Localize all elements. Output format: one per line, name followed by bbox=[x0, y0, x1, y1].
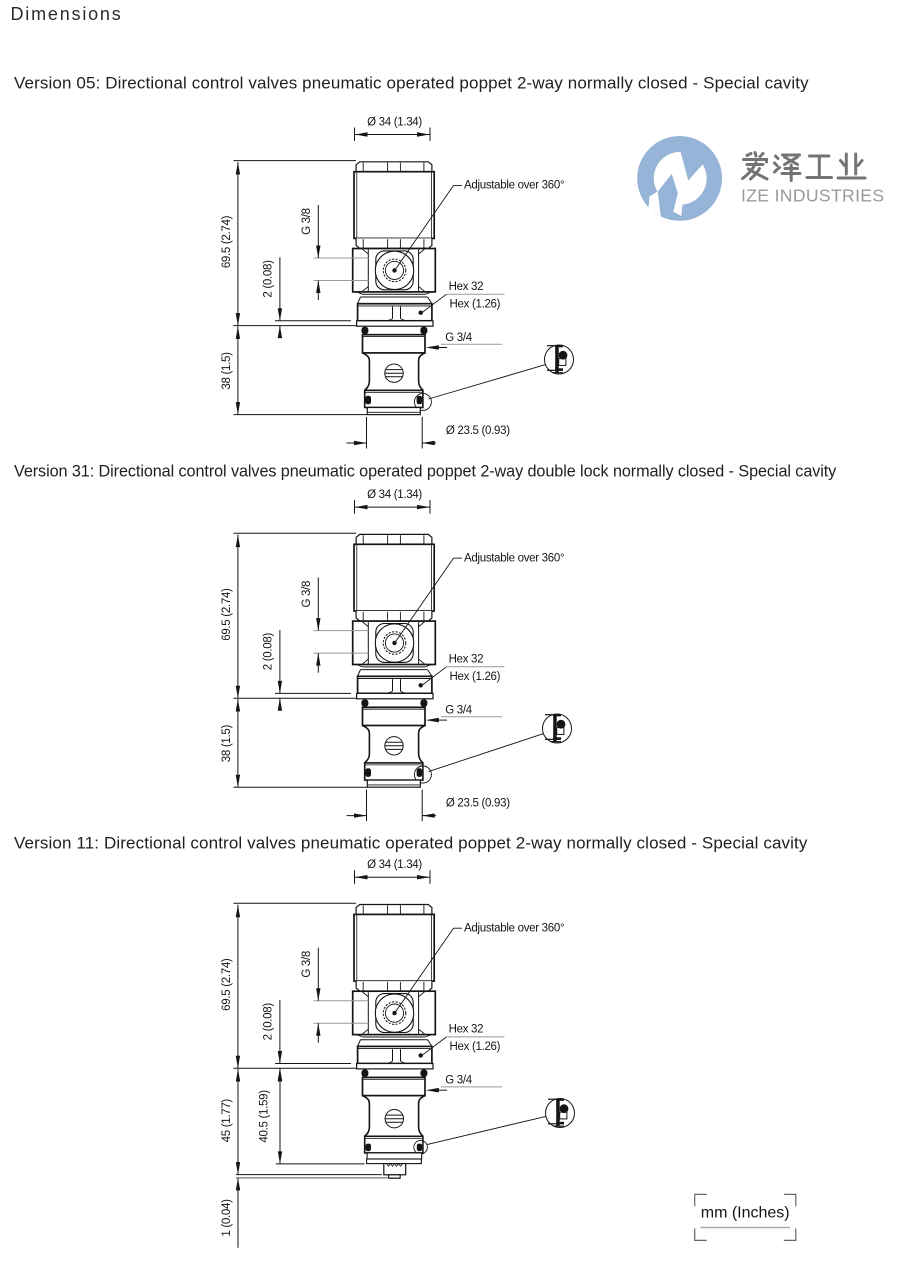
svg-text:45 (1.77): 45 (1.77) bbox=[221, 1099, 233, 1143]
svg-text:Version 11: Directional contro: Version 11: Directional control valves p… bbox=[14, 834, 808, 853]
svg-text:1 (0.04): 1 (0.04) bbox=[221, 1199, 233, 1237]
svg-text:G 3/8: G 3/8 bbox=[301, 581, 313, 608]
svg-text:38 (1.5): 38 (1.5) bbox=[221, 725, 233, 763]
svg-text:mm (Inches): mm (Inches) bbox=[701, 1205, 790, 1222]
svg-text:38 (1.5): 38 (1.5) bbox=[221, 352, 233, 390]
svg-text:G 3/8: G 3/8 bbox=[301, 208, 313, 235]
svg-text:Adjustable over 360°: Adjustable over 360° bbox=[464, 922, 564, 934]
svg-text:Hex 32: Hex 32 bbox=[449, 281, 484, 293]
svg-text:G 3/4: G 3/4 bbox=[445, 1075, 473, 1087]
svg-text:2 (0.08): 2 (0.08) bbox=[263, 1003, 275, 1041]
svg-text:G 3/4: G 3/4 bbox=[445, 705, 473, 717]
svg-text:G 3/8: G 3/8 bbox=[301, 951, 313, 978]
svg-text:Hex 32: Hex 32 bbox=[449, 653, 484, 665]
svg-text:2 (0.08): 2 (0.08) bbox=[263, 633, 275, 671]
svg-text:Ø 34 (1.34): Ø 34 (1.34) bbox=[367, 859, 422, 871]
svg-text:Ø 34 (1.34): Ø 34 (1.34) bbox=[367, 489, 422, 501]
svg-text:Hex 32: Hex 32 bbox=[449, 1024, 484, 1036]
svg-text:Dimensions: Dimensions bbox=[11, 4, 123, 24]
svg-text:G 3/4: G 3/4 bbox=[445, 332, 473, 344]
svg-text:Ø 23.5 (0.93): Ø 23.5 (0.93) bbox=[446, 797, 510, 809]
svg-text:Hex (1.26): Hex (1.26) bbox=[450, 671, 501, 683]
svg-text:69.5 (2.74): 69.5 (2.74) bbox=[221, 958, 233, 1011]
svg-text:2 (0.08): 2 (0.08) bbox=[263, 260, 275, 298]
svg-text:Ø 34 (1.34): Ø 34 (1.34) bbox=[367, 116, 422, 128]
svg-text:69.5 (2.74): 69.5 (2.74) bbox=[221, 215, 233, 268]
svg-text:40.5 (1.59): 40.5 (1.59) bbox=[259, 1090, 271, 1143]
svg-text:Hex (1.26): Hex (1.26) bbox=[450, 1041, 501, 1053]
svg-text:Hex (1.26): Hex (1.26) bbox=[450, 298, 501, 310]
svg-text:Adjustable over 360°: Adjustable over 360° bbox=[464, 552, 564, 564]
svg-text:Adjustable over 360°: Adjustable over 360° bbox=[464, 180, 564, 192]
svg-text:Version 31: Directional contro: Version 31: Directional control valves p… bbox=[14, 463, 837, 481]
svg-text:69.5 (2.74): 69.5 (2.74) bbox=[221, 588, 233, 641]
svg-text:IZE INDUSTRIES: IZE INDUSTRIES bbox=[741, 186, 884, 206]
svg-text:Ø 23.5 (0.93): Ø 23.5 (0.93) bbox=[446, 425, 510, 437]
svg-text:Version 05: Directional contro: Version 05: Directional control valves p… bbox=[14, 74, 809, 93]
